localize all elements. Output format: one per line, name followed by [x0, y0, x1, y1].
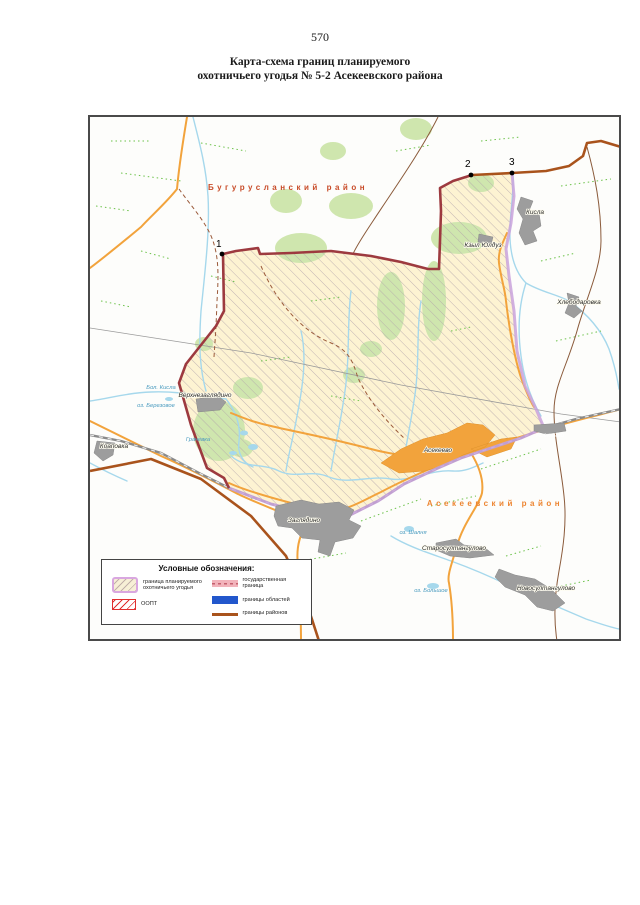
- legend-item-oopt: ООПТ: [112, 599, 212, 610]
- oblast-border-swatch: [212, 596, 238, 604]
- label-koapovka: Коаповка: [100, 443, 129, 450]
- district-label-bugurslansky: Бугурусланский район: [208, 183, 368, 192]
- page-title: Карта-схема границ планируемого охотничь…: [0, 56, 640, 83]
- oopt-swatch: [112, 599, 136, 610]
- hunting-boundary-swatch: [112, 577, 138, 593]
- district-label-asekeevsky: Асекеевский район: [427, 499, 563, 508]
- map-frame: 1 2 3 Бугурусланский район Асекеевский р…: [88, 115, 621, 641]
- hunting-ground-hatch: [179, 173, 544, 516]
- label-oz-berezovoe: оз. Березовое: [137, 403, 175, 409]
- legend-item-hunting-boundary: граница планируемого охотничьего угодья: [112, 577, 212, 593]
- legend-title: Условные обозначения:: [102, 564, 311, 573]
- point-2-label: 2: [465, 159, 471, 170]
- legend-label: границы районов: [243, 610, 307, 616]
- label-kzyl-yulduz: Кзыл Юлдуз: [464, 241, 501, 249]
- label-asekeevo: Асекеево: [423, 447, 453, 454]
- label-grachevka: Грачевка: [186, 437, 211, 443]
- legend-label: границы областей: [243, 597, 307, 603]
- legend-item-state-border: государственная граница: [212, 577, 312, 590]
- label-hlebodarovka: Хлебодаровка: [556, 298, 601, 306]
- document-page: 570 Карта-схема границ планируемого охот…: [0, 0, 640, 905]
- label-zaglyadino: Заглядино: [288, 516, 321, 524]
- title-line-2: охотничьего угодья № 5-2 Асекеевского ра…: [0, 70, 640, 84]
- legend-label: государственная граница: [243, 577, 307, 590]
- label-kisla: Кисла: [526, 209, 544, 216]
- legend-item-rayon-border: границы районов: [212, 610, 312, 616]
- legend-label: ООПТ: [141, 601, 205, 607]
- point-3-label: 3: [509, 157, 515, 168]
- point-1-label: 1: [216, 239, 222, 250]
- label-starosultangulovo: Старосултангулово: [422, 545, 486, 552]
- page-number: 570: [0, 30, 640, 45]
- title-line-1: Карта-схема границ планируемого: [0, 56, 640, 70]
- legend-label: граница планируемого охотничьего угодья: [143, 579, 207, 592]
- label-novosultangulovo: Новосултангулово: [517, 585, 576, 592]
- label-bol-kisla: Бол. Кисла: [146, 385, 176, 391]
- label-verhnezaglyadino: Верхнезаглядино: [179, 391, 232, 399]
- label-oz-bolshoe: оз. Большое: [414, 588, 448, 594]
- label-asekeevo-station: Асекеево: [535, 432, 565, 439]
- legend-item-oblast-border: границы областей: [212, 596, 312, 604]
- label-oz-shalnya: оз. Шалня: [399, 530, 426, 536]
- rayon-border-swatch: [212, 613, 238, 616]
- map-legend: Условные обозначения: граница планируемо…: [101, 559, 312, 625]
- state-border-swatch: [212, 580, 238, 587]
